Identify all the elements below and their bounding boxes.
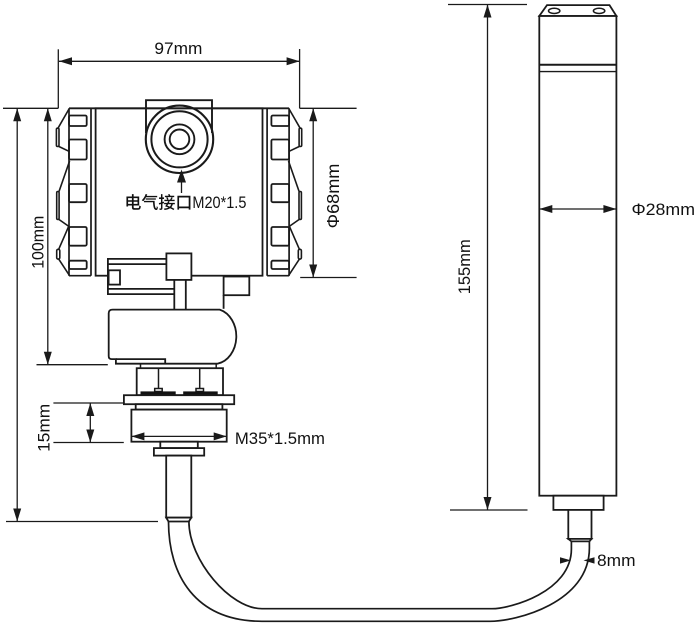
svg-text:Φ68mm: Φ68mm	[323, 164, 343, 229]
svg-text:100mm: 100mm	[29, 216, 48, 269]
svg-text:Φ28mm: Φ28mm	[632, 200, 696, 219]
svg-text:M35*1.5mm: M35*1.5mm	[235, 429, 325, 448]
svg-text:M20*1.5: M20*1.5	[192, 193, 246, 212]
svg-text:155mm: 155mm	[455, 239, 474, 294]
svg-text:8mm: 8mm	[597, 551, 636, 570]
svg-text:15mm: 15mm	[35, 404, 54, 452]
svg-text:97mm: 97mm	[154, 39, 202, 58]
